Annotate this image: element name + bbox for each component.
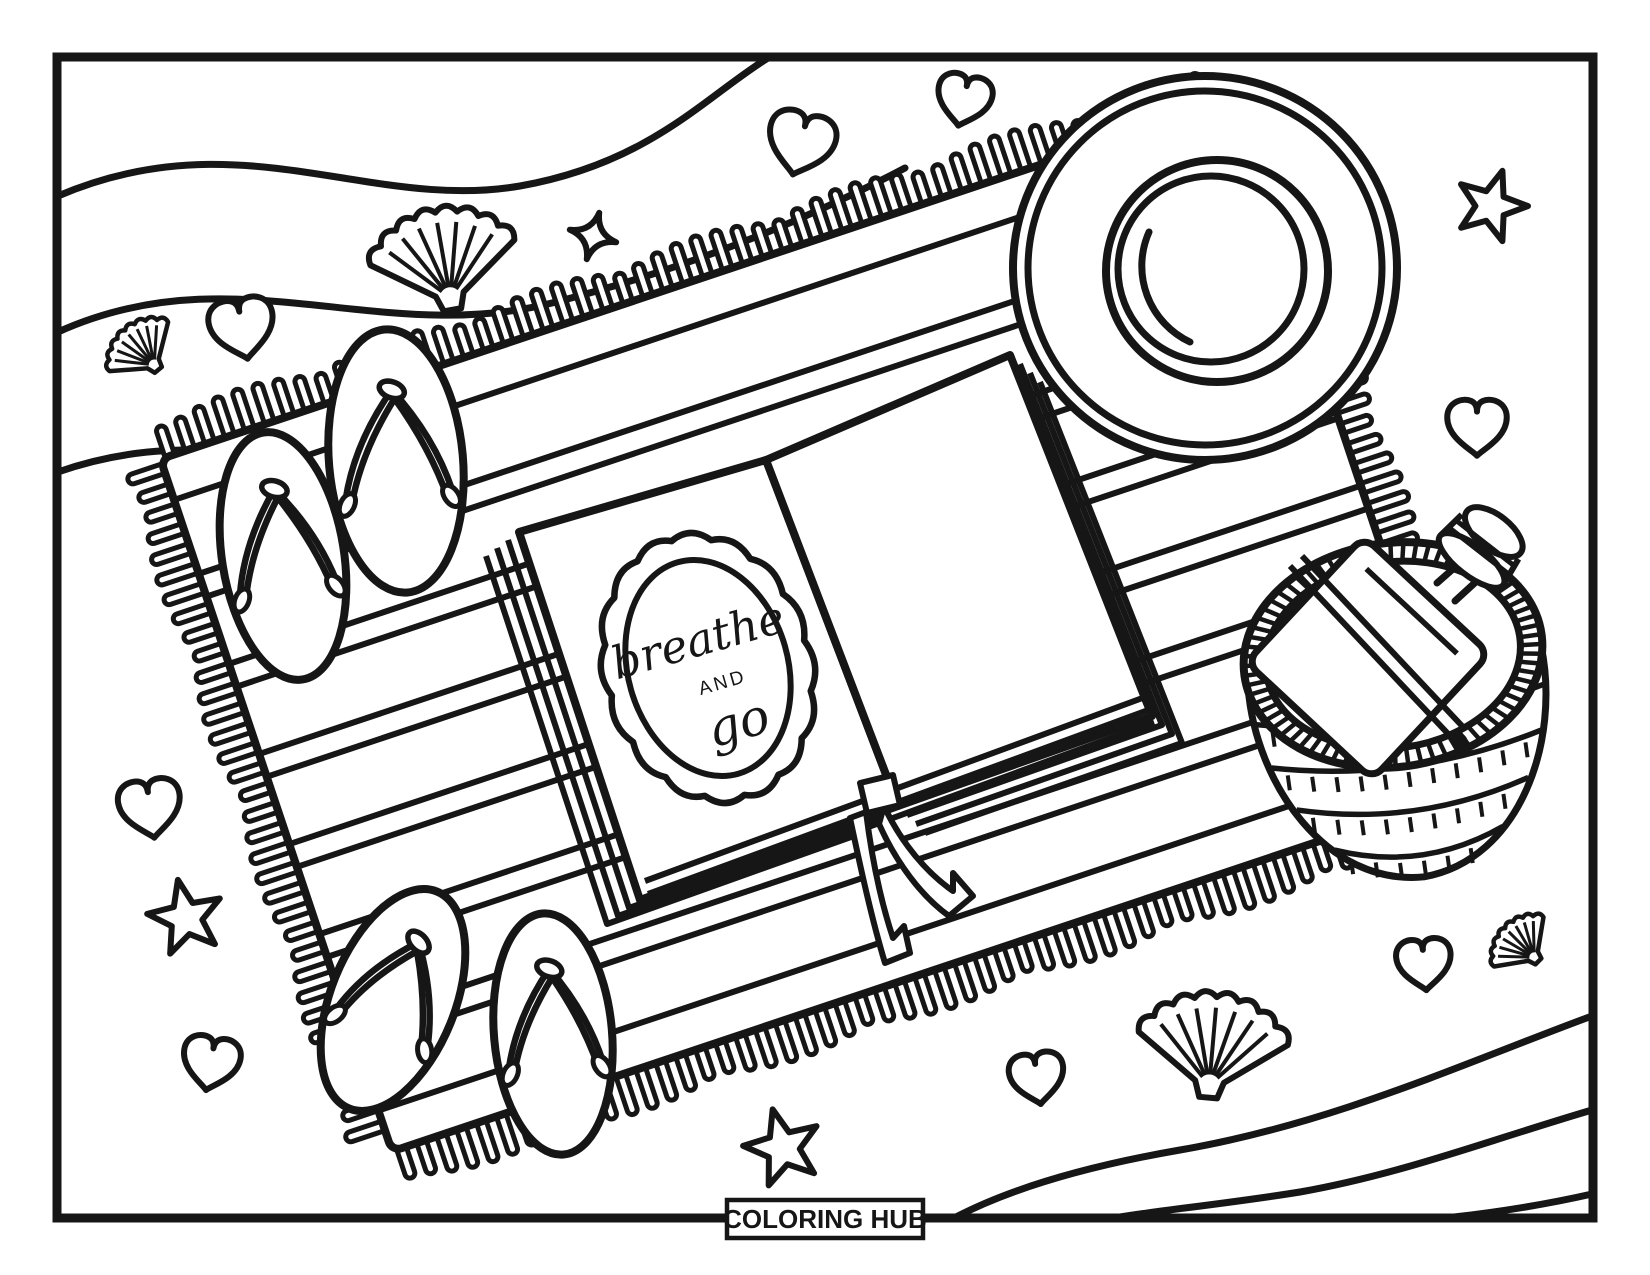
weave-tick [1337,820,1339,835]
brand-badge-label: COLORING HUB [723,1204,927,1234]
weave-tick [1400,863,1402,878]
weave-tick [1408,772,1410,787]
weave-tick [1479,757,1481,772]
weave-tick [1336,777,1338,792]
weave-tick [1361,776,1363,791]
weave-tick [1410,817,1412,832]
weave-tick [1480,802,1482,817]
weave-tick [1471,848,1473,863]
coloring-page-canvas: breathe AND go [0,0,1650,1275]
weave-tick [1457,808,1459,823]
flip-flop-strap-loop [416,1038,433,1064]
weave-tick [1362,820,1364,835]
weave-tick [1525,742,1527,757]
weave-tick [1503,794,1505,809]
weave-tick [1385,775,1387,790]
weave-tick [1432,768,1434,783]
rim-hatch-tick [1406,747,1409,766]
weave-tick [1447,856,1449,871]
hat-brim-outer [1013,76,1397,460]
rim-hatch-tick [1520,634,1542,637]
weave-tick [1456,763,1458,778]
ribbon-knot [860,775,900,813]
weave-tick [1312,777,1314,792]
weave-tick [1502,750,1504,765]
weave-tick [1313,818,1315,833]
sun-hat [1013,76,1397,460]
weave-tick [1424,861,1426,876]
weave-tick [1433,814,1435,829]
weave-tick [1386,819,1388,834]
coloring-page: breathe AND go [0,0,1650,1275]
weave-tick [1376,862,1378,877]
brand-badge: COLORING HUB [723,1200,927,1238]
weave-tick [1351,859,1353,874]
rim-hatch-tick [1520,642,1542,647]
weave-tick [1288,775,1290,790]
